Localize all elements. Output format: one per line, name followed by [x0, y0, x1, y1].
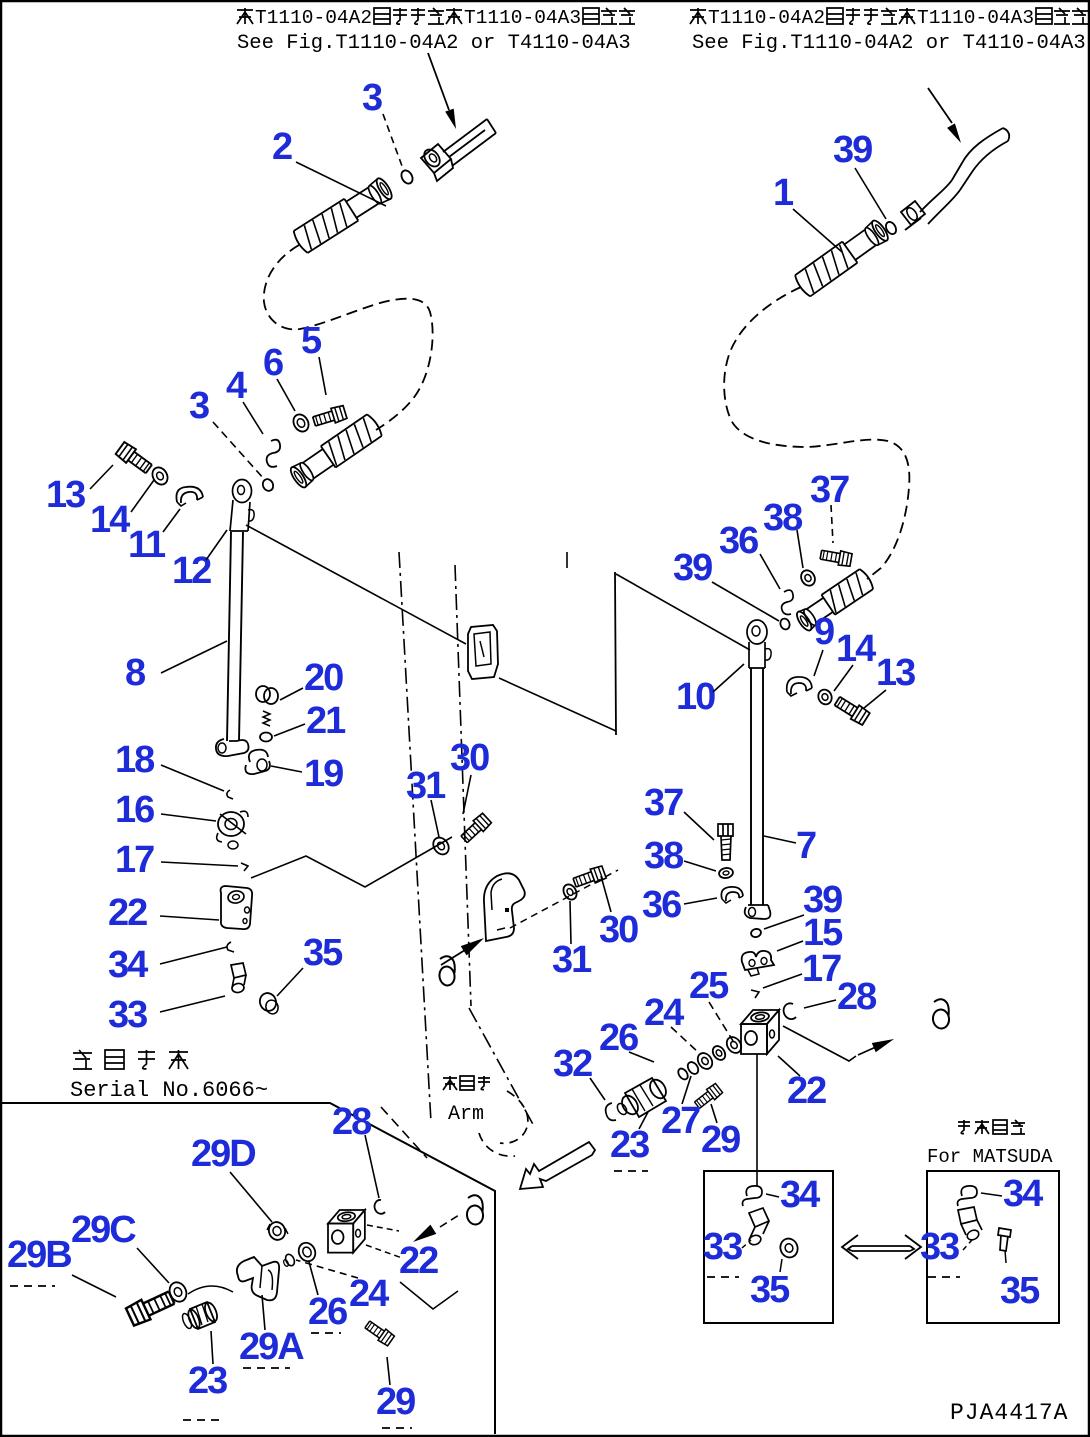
svg-text:17: 17 — [115, 839, 154, 881]
svg-text:23: 23 — [188, 1360, 227, 1402]
svg-text:22: 22 — [787, 1070, 826, 1112]
svg-text:35: 35 — [1000, 1270, 1040, 1312]
svg-text:14: 14 — [90, 499, 130, 541]
svg-text:34: 34 — [1003, 1173, 1043, 1215]
svg-text:For MATSUDA: For MATSUDA — [927, 1146, 1053, 1168]
svg-text:24: 24 — [644, 992, 684, 1034]
svg-text:37: 37 — [810, 469, 849, 511]
svg-text:PJA4417A: PJA4417A — [950, 1400, 1068, 1426]
svg-text:3: 3 — [362, 77, 382, 119]
svg-text:29: 29 — [701, 1119, 740, 1161]
svg-text:38: 38 — [644, 835, 683, 877]
svg-text:2: 2 — [272, 126, 292, 168]
svg-text:9: 9 — [814, 611, 834, 653]
svg-text:31: 31 — [552, 939, 592, 981]
svg-text:33: 33 — [703, 1226, 742, 1268]
svg-text:17: 17 — [802, 948, 841, 990]
svg-text:20: 20 — [304, 657, 343, 699]
svg-text:31: 31 — [406, 765, 446, 807]
svg-text:30: 30 — [599, 909, 638, 951]
svg-text:22: 22 — [399, 1240, 438, 1282]
svg-text:21: 21 — [306, 700, 346, 742]
svg-text:28: 28 — [837, 976, 876, 1018]
svg-text:25: 25 — [689, 965, 729, 1007]
svg-text:39: 39 — [833, 129, 872, 171]
svg-text:1: 1 — [773, 172, 794, 214]
svg-text:T1110-04A3: T1110-04A3 — [464, 7, 581, 29]
svg-text:See Fig.T1110-04A2 or T4110-04: See Fig.T1110-04A2 or T4110-04A3 — [237, 32, 631, 55]
svg-text:23: 23 — [610, 1124, 649, 1166]
svg-text:33: 33 — [920, 1226, 959, 1268]
svg-text:4: 4 — [226, 365, 247, 407]
svg-text:11: 11 — [128, 524, 166, 566]
svg-text:Serial No.6066~: Serial No.6066~ — [70, 1078, 268, 1103]
svg-text:T1110-04A3: T1110-04A3 — [917, 7, 1034, 29]
svg-text:24: 24 — [349, 1273, 389, 1315]
svg-text:See Fig.T1110-04A2 or T4110-04: See Fig.T1110-04A2 or T4110-04A3 — [692, 32, 1086, 55]
svg-text:35: 35 — [750, 1269, 790, 1311]
svg-text:32: 32 — [553, 1043, 592, 1085]
svg-text:6: 6 — [263, 342, 283, 384]
svg-text:14: 14 — [836, 628, 876, 670]
svg-text:19: 19 — [304, 753, 343, 795]
svg-text:33: 33 — [108, 994, 147, 1036]
svg-text:27: 27 — [661, 1100, 700, 1142]
svg-text:38: 38 — [763, 497, 802, 539]
svg-text:36: 36 — [719, 520, 758, 562]
svg-text:T1110-04A2: T1110-04A2 — [708, 7, 825, 29]
svg-text:T1110-04A2: T1110-04A2 — [255, 7, 372, 29]
svg-text:13: 13 — [876, 652, 915, 694]
svg-text:5: 5 — [301, 320, 322, 362]
svg-text:29A: 29A — [239, 1326, 304, 1368]
svg-text:36: 36 — [642, 884, 681, 926]
svg-text:7: 7 — [796, 825, 816, 867]
svg-text:12: 12 — [172, 550, 211, 592]
svg-text:26: 26 — [308, 1291, 347, 1333]
svg-text:16: 16 — [115, 789, 154, 831]
svg-text:Arm: Arm — [448, 1103, 484, 1126]
svg-text:39: 39 — [673, 547, 712, 589]
svg-text:8: 8 — [125, 652, 145, 694]
svg-text:29C: 29C — [71, 1209, 136, 1251]
svg-text:29B: 29B — [7, 1234, 71, 1276]
svg-text:35: 35 — [303, 932, 343, 974]
svg-text:3: 3 — [189, 385, 209, 427]
svg-text:37: 37 — [644, 782, 683, 824]
svg-text:13: 13 — [46, 474, 85, 516]
svg-text:30: 30 — [450, 737, 489, 779]
svg-text:18: 18 — [115, 739, 154, 781]
svg-text:34: 34 — [780, 1174, 820, 1216]
svg-text:29D: 29D — [191, 1133, 255, 1175]
svg-text:29: 29 — [376, 1381, 415, 1423]
svg-text:34: 34 — [108, 944, 148, 986]
svg-text:10: 10 — [676, 676, 715, 718]
svg-text:22: 22 — [108, 892, 147, 934]
